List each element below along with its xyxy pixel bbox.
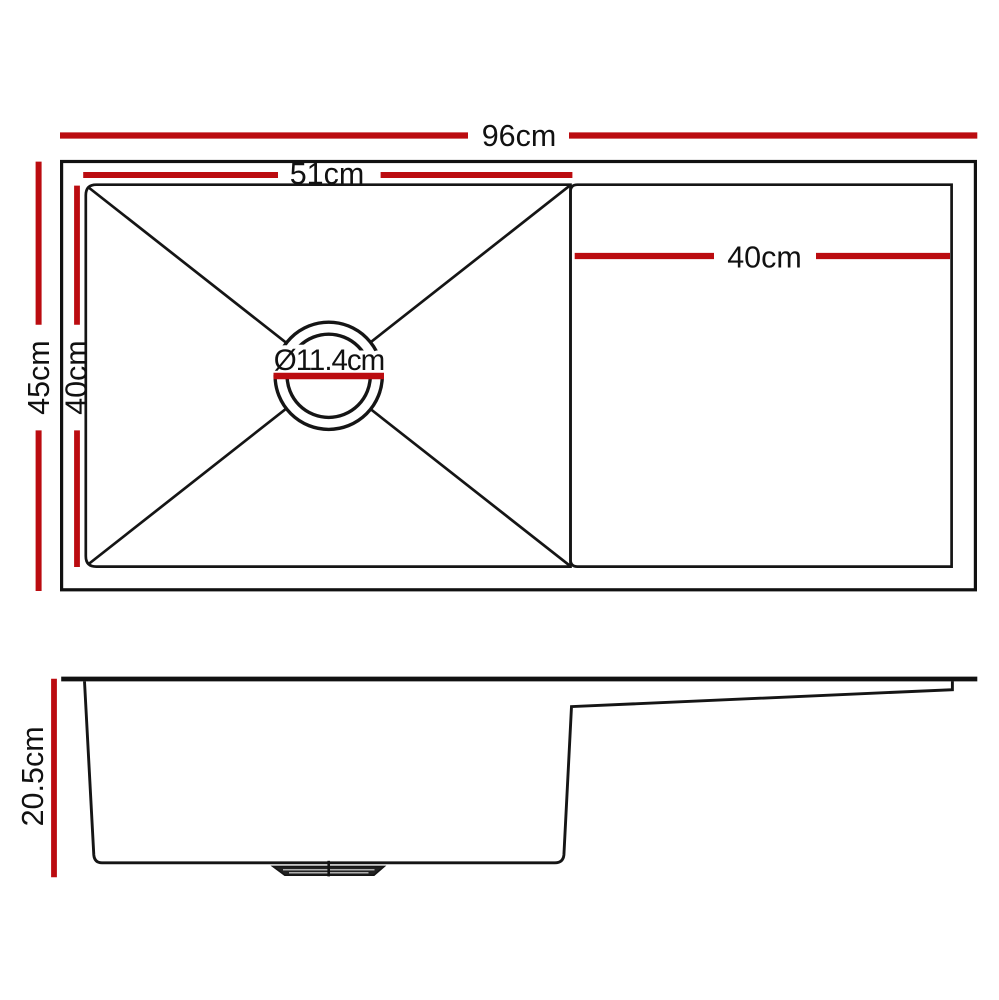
svg-text:96cm: 96cm	[482, 119, 557, 153]
svg-text:40cm: 40cm	[60, 340, 94, 415]
svg-text:51cm: 51cm	[290, 157, 365, 191]
svg-text:Ø11.4cm: Ø11.4cm	[274, 344, 385, 377]
svg-text:45cm: 45cm	[22, 340, 56, 415]
svg-text:40cm: 40cm	[727, 241, 802, 275]
svg-text:20.5cm: 20.5cm	[16, 726, 50, 826]
